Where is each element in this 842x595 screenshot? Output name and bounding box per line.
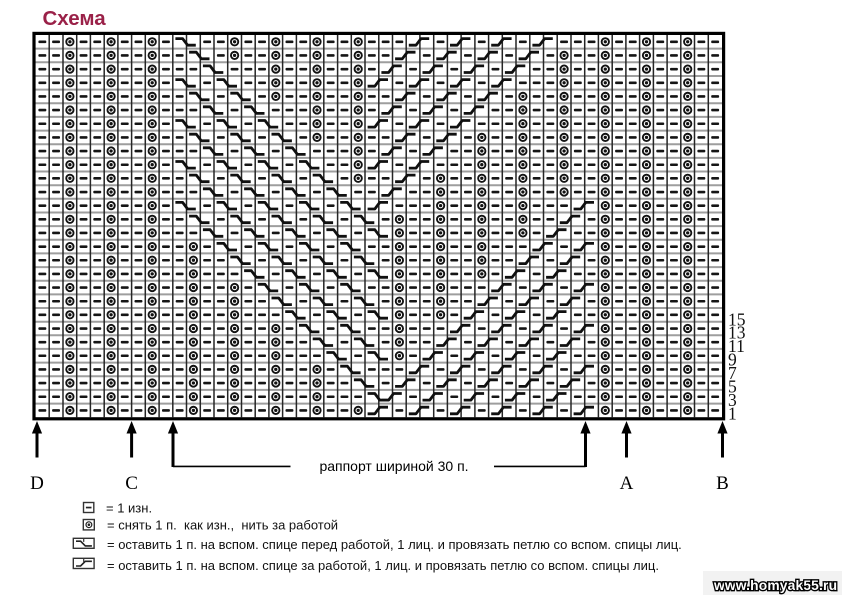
svg-text:A: A bbox=[620, 473, 634, 494]
svg-text:= оставить 1 п. на вспом. спиц: = оставить 1 п. на вспом. спице за работ… bbox=[107, 558, 659, 573]
svg-text:= 1 изн.: = 1 изн. bbox=[106, 501, 152, 516]
svg-text:Схема: Схема bbox=[43, 7, 107, 30]
svg-text:www.homyak55.ru: www.homyak55.ru bbox=[713, 578, 837, 593]
svg-text:= снять 1 п. как изн., нить: = снять 1 п. как изн., нить за работой bbox=[107, 518, 338, 533]
svg-text:1: 1 bbox=[728, 403, 737, 423]
svg-text:D: D bbox=[30, 473, 44, 494]
svg-text:= оставить 1 п. на вспом. спиц: = оставить 1 п. на вспом. спице перед ра… bbox=[107, 537, 682, 552]
svg-text:B: B bbox=[716, 473, 729, 494]
svg-text:C: C bbox=[125, 473, 138, 494]
svg-text:раппорт шириной 30 п.: раппорт шириной 30 п. bbox=[319, 458, 468, 474]
